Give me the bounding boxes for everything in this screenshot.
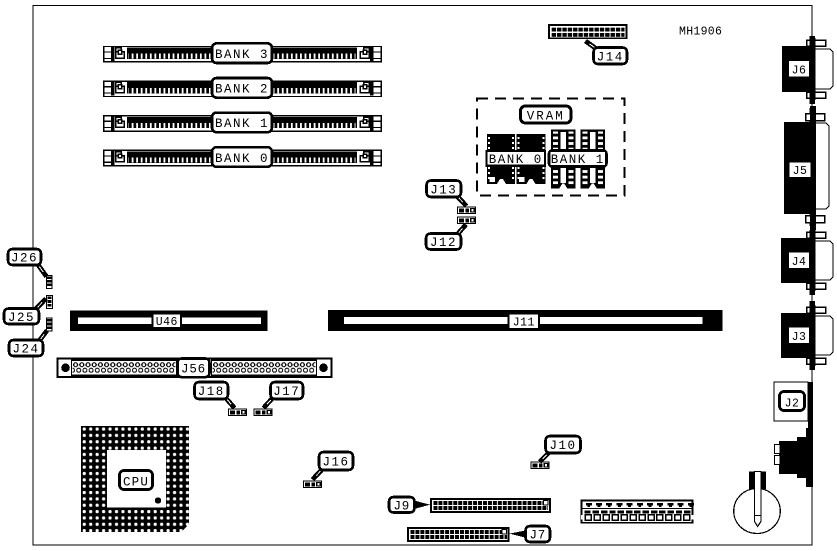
- svg-text:J5: J5: [793, 165, 808, 178]
- svg-text:BANK 1: BANK 1: [551, 153, 605, 167]
- svg-text:U46: U46: [156, 316, 178, 329]
- svg-text:VRAM: VRAM: [527, 109, 565, 123]
- svg-text:BANK 3: BANK 3: [215, 48, 269, 62]
- svg-text:J56: J56: [181, 363, 206, 377]
- svg-text:MH1906: MH1906: [679, 26, 722, 39]
- svg-text:J18: J18: [198, 385, 225, 399]
- svg-text:J11: J11: [513, 316, 535, 329]
- svg-text:J12: J12: [430, 236, 457, 250]
- svg-text:J2: J2: [785, 397, 800, 410]
- svg-text:J3: J3: [792, 331, 807, 344]
- svg-text:J17: J17: [273, 385, 300, 399]
- svg-text:J24: J24: [12, 343, 39, 357]
- svg-text:J13: J13: [430, 183, 457, 197]
- svg-text:J25: J25: [8, 311, 35, 325]
- svg-text:BANK 1: BANK 1: [215, 117, 269, 131]
- svg-text:CPU: CPU: [123, 475, 149, 489]
- svg-text:J7: J7: [529, 529, 546, 543]
- svg-text:J9: J9: [393, 499, 410, 513]
- svg-text:J10: J10: [549, 439, 576, 453]
- svg-text:J14: J14: [597, 50, 624, 64]
- svg-text:J16: J16: [322, 456, 349, 470]
- svg-text:BANK 0: BANK 0: [489, 153, 543, 167]
- svg-text:BANK 2: BANK 2: [215, 83, 269, 97]
- svg-text:J4: J4: [792, 256, 807, 269]
- svg-text:J6: J6: [792, 64, 807, 77]
- svg-text:J26: J26: [11, 252, 38, 266]
- svg-text:BANK 0: BANK 0: [215, 152, 269, 166]
